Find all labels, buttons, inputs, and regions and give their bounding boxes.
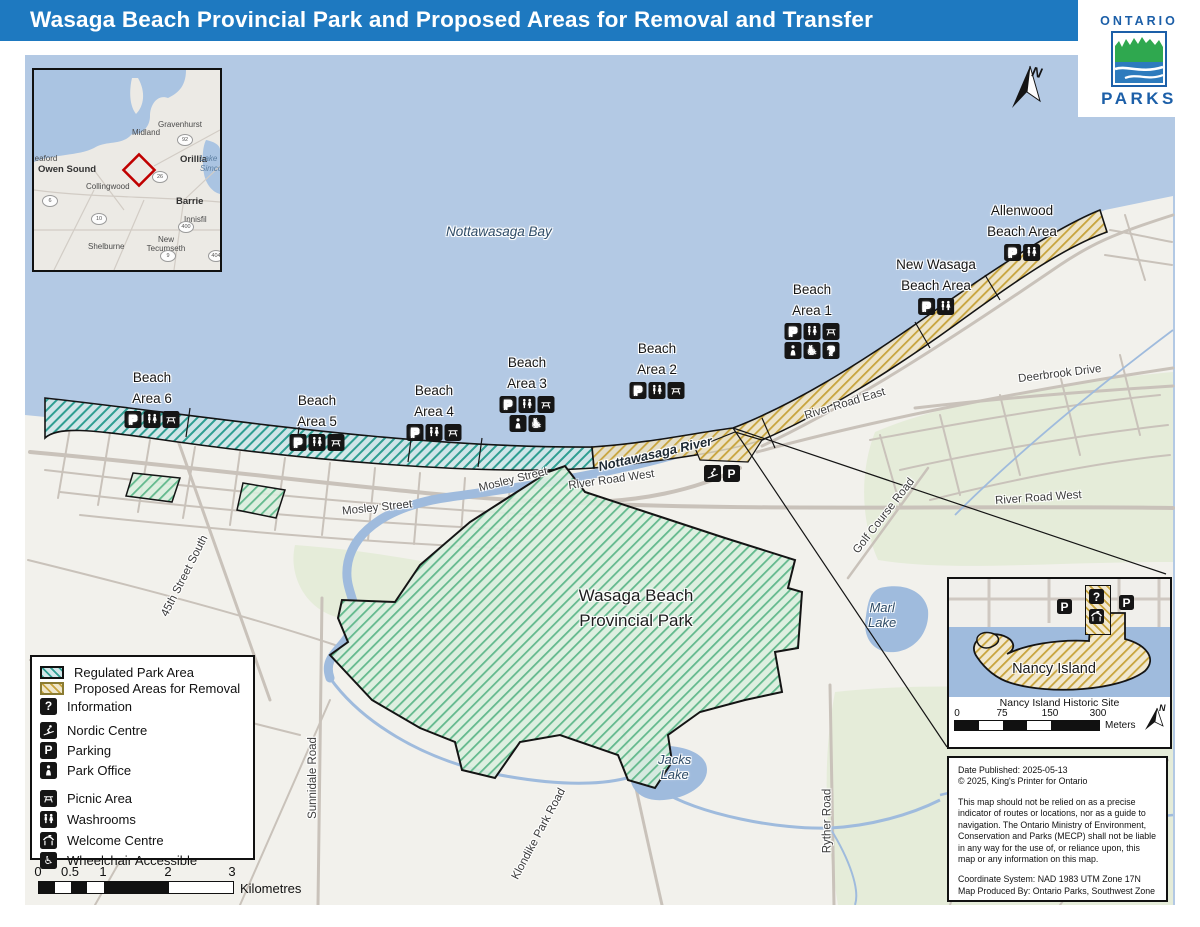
parking-icon: P bbox=[918, 298, 935, 315]
washrooms-icon bbox=[937, 298, 954, 315]
beach-area-3-label: BeachArea 3 P ♿ bbox=[500, 352, 555, 432]
picnic-area-icon bbox=[328, 434, 345, 451]
washrooms-icon bbox=[649, 382, 666, 399]
nordic-centre-icon bbox=[40, 722, 57, 739]
highway-shield: 6 bbox=[42, 195, 58, 207]
legend: Regulated Park Area Proposed Areas for R… bbox=[30, 655, 255, 860]
nancy-island-label: Nancy Island bbox=[1012, 661, 1096, 677]
picnic-area-icon bbox=[538, 396, 555, 413]
map-document: { "header": { "title": "Wasaga Beach Pro… bbox=[0, 0, 1200, 927]
legend-item-park-office: Park Office bbox=[40, 761, 131, 779]
beach-area-2-label: BeachArea 2 P bbox=[630, 338, 685, 399]
regulated-icon bbox=[40, 666, 64, 679]
beach-area-4-label: BeachArea 4 P bbox=[407, 380, 462, 441]
parking-icon: P bbox=[1057, 599, 1072, 614]
picnic-area-icon bbox=[163, 411, 180, 428]
overview-place-collingwood: Collingwood bbox=[86, 182, 130, 191]
coordinate-system: Coordinate System: NAD 1983 UTM Zone 17N bbox=[958, 874, 1157, 885]
park-office-icon bbox=[785, 342, 802, 359]
logo-text-parks: PARKS bbox=[1078, 89, 1200, 109]
parking-icon: P bbox=[630, 382, 647, 399]
nancy-scale-bar bbox=[954, 720, 1100, 731]
parking-icon: P bbox=[785, 323, 802, 340]
new-wasaga-beach-area-label: New WasagaBeach Area P bbox=[896, 254, 976, 315]
highway-shield: 10 bbox=[91, 213, 107, 225]
wheelchair-icon: ♿ bbox=[528, 415, 545, 432]
nordic-centre-icon bbox=[704, 465, 721, 482]
produced-by: Map Produced By: Ontario Parks, Southwes… bbox=[958, 886, 1157, 897]
legend-item-picnic: Picnic Area bbox=[40, 789, 132, 807]
washrooms-icon bbox=[1023, 244, 1040, 261]
legend-item-welcome: Welcome Centre bbox=[40, 831, 164, 849]
welcome-centre-icon bbox=[40, 832, 57, 849]
legend-item-parking: PParking bbox=[40, 741, 111, 759]
date-published: Date Published: 2025-05-13 bbox=[958, 765, 1157, 776]
picnic-area-icon bbox=[445, 424, 462, 441]
copyright: © 2025, King's Printer for Ontario bbox=[958, 776, 1157, 787]
legend-item-nordic: Nordic Centre bbox=[40, 721, 147, 739]
beach-area-5-label: BeachArea 5 P bbox=[290, 390, 345, 451]
overview-place-gravenhurst: Gravenhurst bbox=[158, 120, 202, 129]
highway-shield: 26 bbox=[152, 171, 168, 183]
washrooms-icon bbox=[519, 396, 536, 413]
washrooms-icon bbox=[40, 811, 57, 828]
wheelchair-icon: ♿ bbox=[804, 342, 821, 359]
washrooms-icon bbox=[804, 323, 821, 340]
overview-place-shelburne: Shelburne bbox=[88, 242, 124, 251]
overview-place-owen-sound: Owen Sound bbox=[38, 164, 96, 175]
overview-place-meaford: Meaford bbox=[32, 154, 57, 163]
road-label-ryther: Ryther Road bbox=[821, 789, 833, 854]
proposed-icon bbox=[40, 682, 64, 695]
overview-inset-map: Meaford Owen Sound Collingwood Midland G… bbox=[32, 68, 222, 272]
bay-label: Nottawasaga Bay bbox=[446, 224, 552, 239]
legend-item-washrooms: Washrooms bbox=[40, 810, 136, 828]
overview-place-lake-simcoe: Lake Simcoe bbox=[200, 154, 222, 173]
information-icon: ? bbox=[823, 342, 840, 359]
nancy-north-arrow bbox=[1141, 704, 1167, 734]
information-icon: ? bbox=[1089, 589, 1104, 604]
highway-shield: 9 bbox=[160, 250, 176, 262]
overview-place-barrie: Barrie bbox=[176, 196, 203, 207]
scale-bar: 0 0.5 1 2 3 Kilometres bbox=[30, 864, 320, 904]
nancy-scale-unit: Meters bbox=[1105, 720, 1136, 731]
parking-icon: P bbox=[1119, 595, 1134, 610]
parking-icon: P bbox=[500, 396, 517, 413]
information-icon: ? bbox=[40, 698, 57, 715]
picnic-area-icon bbox=[668, 382, 685, 399]
park-office-icon bbox=[40, 762, 57, 779]
nancy-site-label: Nancy Island Historic Site bbox=[949, 697, 1170, 709]
park-name-label: Wasaga Beach Provincial Park bbox=[579, 583, 694, 633]
welcome-centre-icon bbox=[1089, 609, 1104, 624]
road-label-sunnidale: Sunnidale Road bbox=[307, 737, 319, 819]
logo-text-ontario: ONTARIO bbox=[1078, 14, 1200, 28]
title-bar: Wasaga Beach Provincial Park and Propose… bbox=[0, 0, 1200, 41]
overview-place-orangeville: Orangeville bbox=[100, 270, 140, 272]
washrooms-icon bbox=[144, 411, 161, 428]
beach-area-6-label: BeachArea 6 P bbox=[125, 367, 180, 428]
scale-bar-graphic bbox=[38, 881, 234, 894]
beach-area-1-label: BeachArea 1 P ♿? bbox=[785, 279, 840, 359]
washrooms-icon bbox=[309, 434, 326, 451]
allenwood-beach-area-label: AllenwoodBeach Area P bbox=[987, 200, 1057, 261]
park-office-icon bbox=[509, 415, 526, 432]
scale-bar-unit: Kilometres bbox=[240, 881, 301, 896]
highway-shield: 404 bbox=[208, 250, 222, 262]
marl-lake-label: MarlLake bbox=[868, 600, 896, 630]
washrooms-icon bbox=[426, 424, 443, 441]
highway-shield: 92 bbox=[177, 134, 193, 146]
picnic-area-icon bbox=[823, 323, 840, 340]
disclaimer-box: Date Published: 2025-05-13 © 2025, King'… bbox=[947, 756, 1168, 902]
jacks-lake-label: JacksLake bbox=[658, 752, 691, 782]
ontario-parks-logo: ONTARIO PARKS bbox=[1078, 0, 1200, 117]
nancy-island-inset: Nancy Island P ? P Nancy Island Historic… bbox=[947, 577, 1172, 749]
parking-icon: P bbox=[125, 411, 142, 428]
picnic-area-icon bbox=[40, 790, 57, 807]
legend-item-information: ?Information bbox=[40, 697, 132, 715]
river-facility-icons: P bbox=[704, 463, 740, 482]
parking-icon: P bbox=[40, 742, 57, 759]
ontario-parks-logo-icon bbox=[1111, 31, 1167, 87]
overview-place-midland: Midland bbox=[132, 128, 160, 137]
disclaimer-text: This map should not be relied on as a pr… bbox=[958, 797, 1157, 866]
parking-icon: P bbox=[1004, 244, 1021, 261]
parking-icon: P bbox=[723, 465, 740, 482]
legend-item-proposed: Proposed Areas for Removal bbox=[40, 679, 240, 697]
parking-icon: P bbox=[407, 424, 424, 441]
page-title: Wasaga Beach Provincial Park and Propose… bbox=[30, 7, 873, 33]
parking-icon: P bbox=[290, 434, 307, 451]
nancy-island-west-lobe bbox=[977, 633, 999, 648]
highway-shield: 400 bbox=[178, 221, 194, 233]
